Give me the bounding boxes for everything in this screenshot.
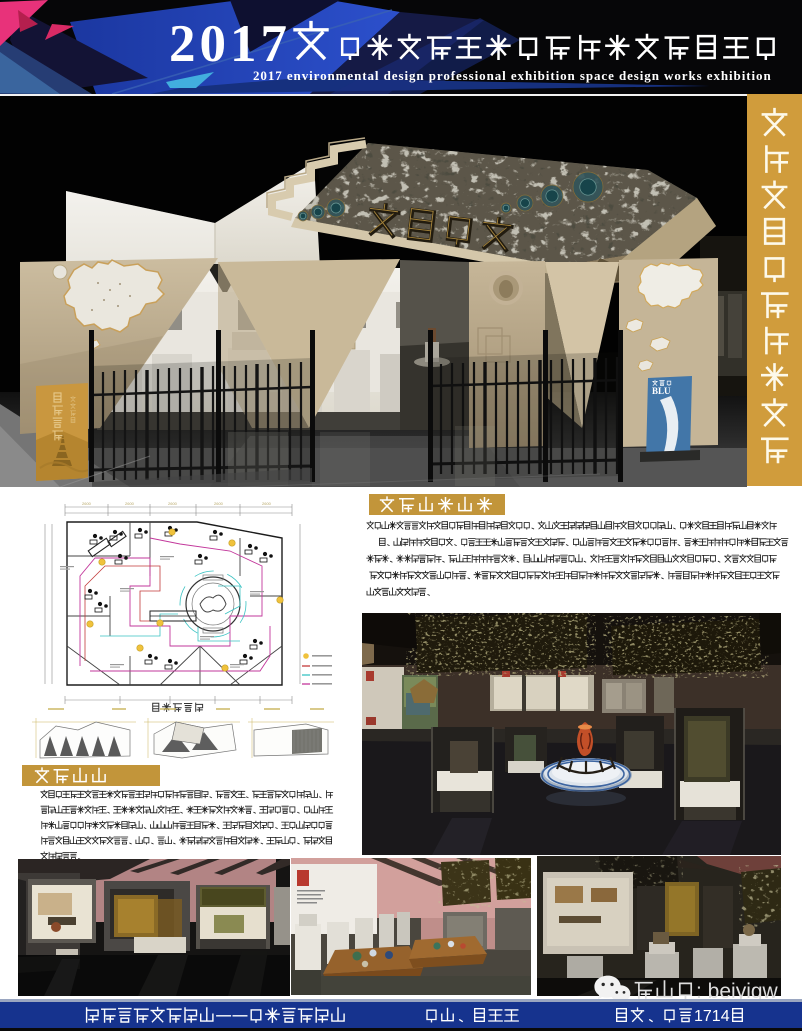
svg-text:2600: 2600 [262,501,272,506]
svg-text:2600: 2600 [214,501,224,506]
svg-text:1714: 1714 [694,1008,730,1025]
svg-text:2600: 2600 [82,501,92,506]
svg-text:2600: 2600 [168,501,178,506]
svg-text:2600: 2600 [125,501,135,506]
svg-text:BLU: BLU [652,386,671,396]
